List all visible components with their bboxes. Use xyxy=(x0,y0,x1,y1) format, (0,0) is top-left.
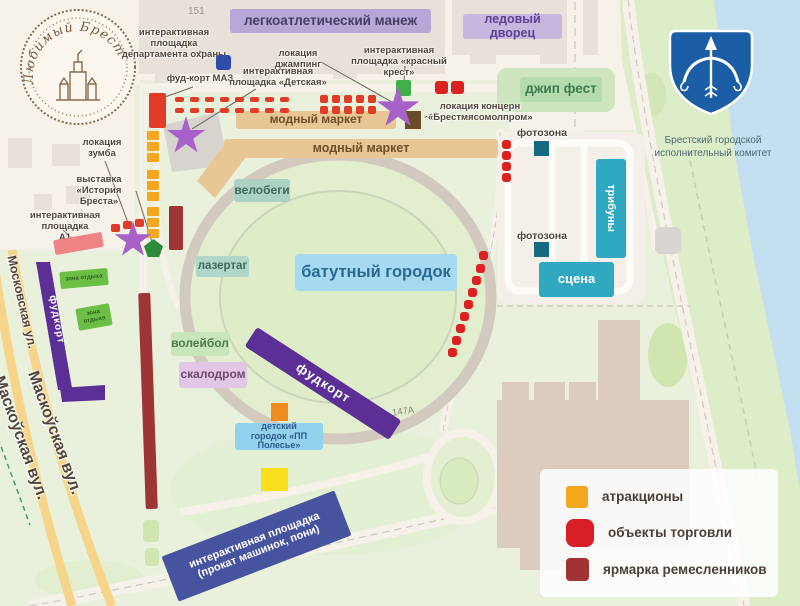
redsq-marker xyxy=(502,151,511,160)
zone-lazertag: лазертаг xyxy=(196,256,249,277)
orange-marker xyxy=(147,207,159,216)
legend-row-trade: объекты торговли xyxy=(566,519,778,547)
annotation-red-cross: интерактивная площадка «красный крест» xyxy=(346,45,452,79)
redsq-marker xyxy=(435,81,448,94)
red-marker xyxy=(265,108,274,113)
detskaya-line2: площадка «Детская» xyxy=(229,77,327,88)
detskaya-line1: интерактивная xyxy=(243,66,313,77)
red-marker xyxy=(111,224,120,232)
committee-line2: исполнительный комитет xyxy=(655,148,772,159)
red-marker xyxy=(235,97,244,102)
photo-zone-1-label: фотозона xyxy=(517,127,567,139)
red-marker xyxy=(356,106,364,114)
red-marker xyxy=(175,108,184,113)
annotation-zumba: локация зумба xyxy=(80,137,124,159)
redsq-marker xyxy=(460,312,469,321)
orange-marker xyxy=(147,153,159,162)
red-marker xyxy=(220,108,229,113)
red-marker xyxy=(280,108,289,113)
redsq-marker xyxy=(448,348,457,357)
annotation-exhibition: выставка «История Бреста» xyxy=(60,174,138,208)
trade-label: объекты торговли xyxy=(608,525,732,540)
blue-marker xyxy=(216,55,231,70)
red-marker xyxy=(175,97,184,102)
yellow-marker xyxy=(261,468,288,491)
zone-fashion-market-2: модный маркет xyxy=(224,139,498,158)
darkred-marker xyxy=(169,206,183,250)
zone-climbing: скалодром xyxy=(179,362,247,388)
red-marker xyxy=(368,95,376,103)
red-marker xyxy=(320,106,328,114)
concern-line2: «Брестмясомолпром» xyxy=(428,112,533,123)
concern-line1: локация концерн xyxy=(440,101,520,112)
redsq-marker xyxy=(464,300,473,309)
annotation-security: интерактивная площадка департамента охра… xyxy=(118,27,230,61)
fair-swatch xyxy=(566,558,589,581)
legend-row-fair: ярмарка ремесленников xyxy=(566,558,778,581)
zone-stage: сцена xyxy=(539,262,614,297)
red-marker xyxy=(332,106,340,114)
red-marker xyxy=(190,108,199,113)
legend-panel: атракционы объекты торговли ярмарка реме… xyxy=(540,469,778,597)
red-marker xyxy=(368,106,376,114)
redsq-marker xyxy=(476,264,485,273)
orangelg-marker xyxy=(271,403,288,421)
red-marker xyxy=(205,97,214,102)
red-marker xyxy=(250,97,259,102)
annotation-detskaya: интерактивная площадка «Детская» xyxy=(222,66,334,88)
red-cross-line2: площадка «красный крест» xyxy=(351,56,447,78)
red-marker xyxy=(123,221,132,229)
annotation-concern: локация концерн «Брестмясомолпром» xyxy=(428,101,532,123)
attractions-label: атракционы xyxy=(602,489,683,504)
exhibition-line1: выставка xyxy=(76,174,121,185)
legend-row-attractions: атракционы xyxy=(566,486,778,508)
orange-marker xyxy=(147,218,159,227)
zumba-line2: зумба xyxy=(88,148,116,159)
red-marker xyxy=(280,97,289,102)
orange-marker xyxy=(147,181,159,190)
photo-zone-2-label: фотозона xyxy=(517,230,567,242)
redsq-marker xyxy=(452,336,461,345)
teal-marker xyxy=(534,242,549,257)
redsq-marker xyxy=(479,251,488,260)
redsq-marker xyxy=(502,140,511,149)
red-marker xyxy=(332,95,340,103)
redsq-marker xyxy=(451,81,464,94)
red-marker xyxy=(344,106,352,114)
orange-marker xyxy=(147,170,159,179)
zone-ice-palace: ледовый дворец xyxy=(463,14,562,39)
redsq-marker xyxy=(502,173,511,182)
red-marker xyxy=(356,95,364,103)
orange-marker xyxy=(147,229,159,238)
zone-volleyball: волейбол xyxy=(171,332,229,356)
red-marker xyxy=(344,95,352,103)
zone-trampoline: батутный городок xyxy=(295,254,457,291)
event-map: Любимый Брест xyxy=(0,0,800,606)
red-marker xyxy=(190,97,199,102)
exhibition-line2: «История Бреста» xyxy=(77,185,122,207)
red-marker xyxy=(235,108,244,113)
trade-swatch xyxy=(566,519,594,547)
red-marker xyxy=(250,108,259,113)
redsq-marker xyxy=(456,324,465,333)
attractions-swatch xyxy=(566,486,588,508)
zone-manezh: легкоатлетический манеж xyxy=(230,9,431,33)
security-line2: департамента охраны xyxy=(122,49,226,60)
redsq-marker xyxy=(472,276,481,285)
zumba-line1: локация xyxy=(83,137,122,148)
red-cross-line1: интерактивная xyxy=(364,45,434,56)
zone-kids-town: детский городок «ПП Полесье» xyxy=(235,423,323,450)
red-marker xyxy=(320,95,328,103)
red-marker xyxy=(205,108,214,113)
kids-town-line2: городок «ПП Полесье» xyxy=(235,432,323,452)
red-marker xyxy=(265,97,274,102)
red-marker xyxy=(135,219,144,227)
orange-marker xyxy=(147,192,159,201)
red-marker xyxy=(220,97,229,102)
zone-jeep-fest: джип фест xyxy=(520,77,602,102)
teal-marker xyxy=(534,141,549,156)
tribunes-label: трибуны xyxy=(605,185,617,233)
zone-tribunes: трибуны xyxy=(596,159,626,258)
orange-marker xyxy=(147,131,159,140)
redsq-marker xyxy=(468,288,477,297)
fair-label: ярмарка ремесленников xyxy=(603,562,767,577)
security-line1: интерактивная площадка xyxy=(139,27,209,49)
red-marker xyxy=(149,93,166,128)
committee-caption: Брестский городской исполнительный комит… xyxy=(652,135,774,160)
a1-line1: интерактивная площадка xyxy=(30,210,100,232)
orange-marker xyxy=(147,142,159,151)
zone-velobegi: велобеги xyxy=(234,179,290,202)
building-151-label: 151 xyxy=(188,6,212,17)
redsq-marker xyxy=(502,162,511,171)
committee-line1: Брестский городской xyxy=(665,135,762,146)
